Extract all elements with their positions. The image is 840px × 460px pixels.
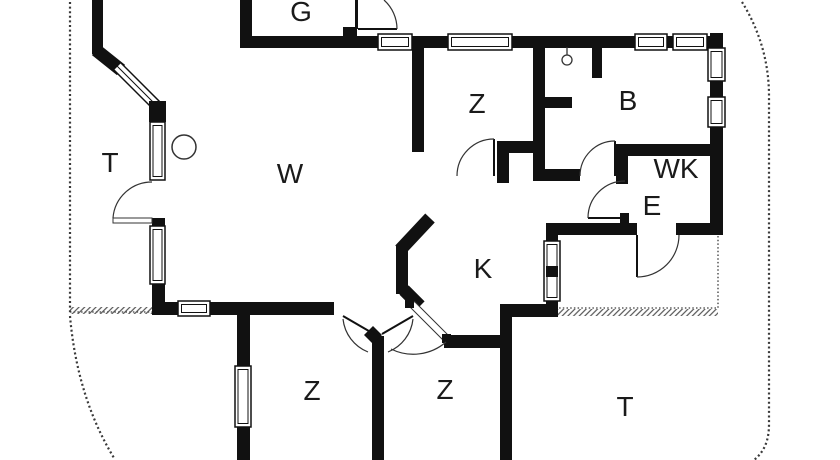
door-bedroom-bottom-right: [382, 316, 413, 352]
room-labels: G T W Z B WK E K Z Z T: [101, 0, 698, 422]
room-label-toilet-wk: WK: [653, 153, 698, 184]
door-entry: [588, 181, 625, 218]
door-kitchen: [391, 299, 451, 354]
room-label-bathroom: B: [619, 85, 638, 116]
wall-corner-blocks: [149, 101, 166, 122]
room-label-kitchen: K: [474, 253, 493, 284]
room-label-bedroom-bl: Z: [303, 375, 320, 406]
window-bedroom-left-wall: [235, 366, 251, 427]
window-right-1: [708, 48, 725, 81]
room-label-terrace-right: T: [616, 391, 633, 422]
window-top-2: [448, 34, 512, 50]
door-terrace-left: [113, 182, 152, 223]
window-right-2: [708, 97, 725, 127]
floor-plan-page: G T W Z B WK E K Z Z T: [0, 0, 840, 460]
floor-plan-svg: G T W Z B WK E K Z Z T: [0, 0, 840, 460]
window-w-bottom: [178, 301, 210, 316]
door-terrace-south: [637, 235, 679, 277]
plot-boundary-right: [742, 2, 769, 460]
room-label-terrace-left: T: [101, 147, 118, 178]
window-kitchen-east: [544, 241, 560, 301]
round-table-symbol: [172, 135, 196, 159]
room-label-garage: G: [290, 0, 312, 27]
terrace-right-edge-hatch: [552, 309, 718, 316]
window-top-4: [673, 34, 707, 50]
window-top-3: [635, 34, 667, 50]
window-left-1: [150, 122, 165, 180]
window-top-1: [378, 34, 412, 50]
room-label-living-room: W: [277, 158, 304, 189]
terrace-left-edge-hatch: [70, 307, 156, 314]
door-bathroom: [580, 141, 615, 176]
room-label-entry: E: [643, 190, 662, 221]
plot-boundary-left-curve: [70, 316, 114, 458]
ceiling-lamp-symbol: [562, 47, 572, 65]
door-garage: [358, 0, 397, 29]
window-left-2: [150, 226, 165, 284]
room-label-bedroom-br: Z: [436, 374, 453, 405]
door-bedroom-top: [457, 139, 494, 176]
room-label-bedroom-top: Z: [468, 88, 485, 119]
